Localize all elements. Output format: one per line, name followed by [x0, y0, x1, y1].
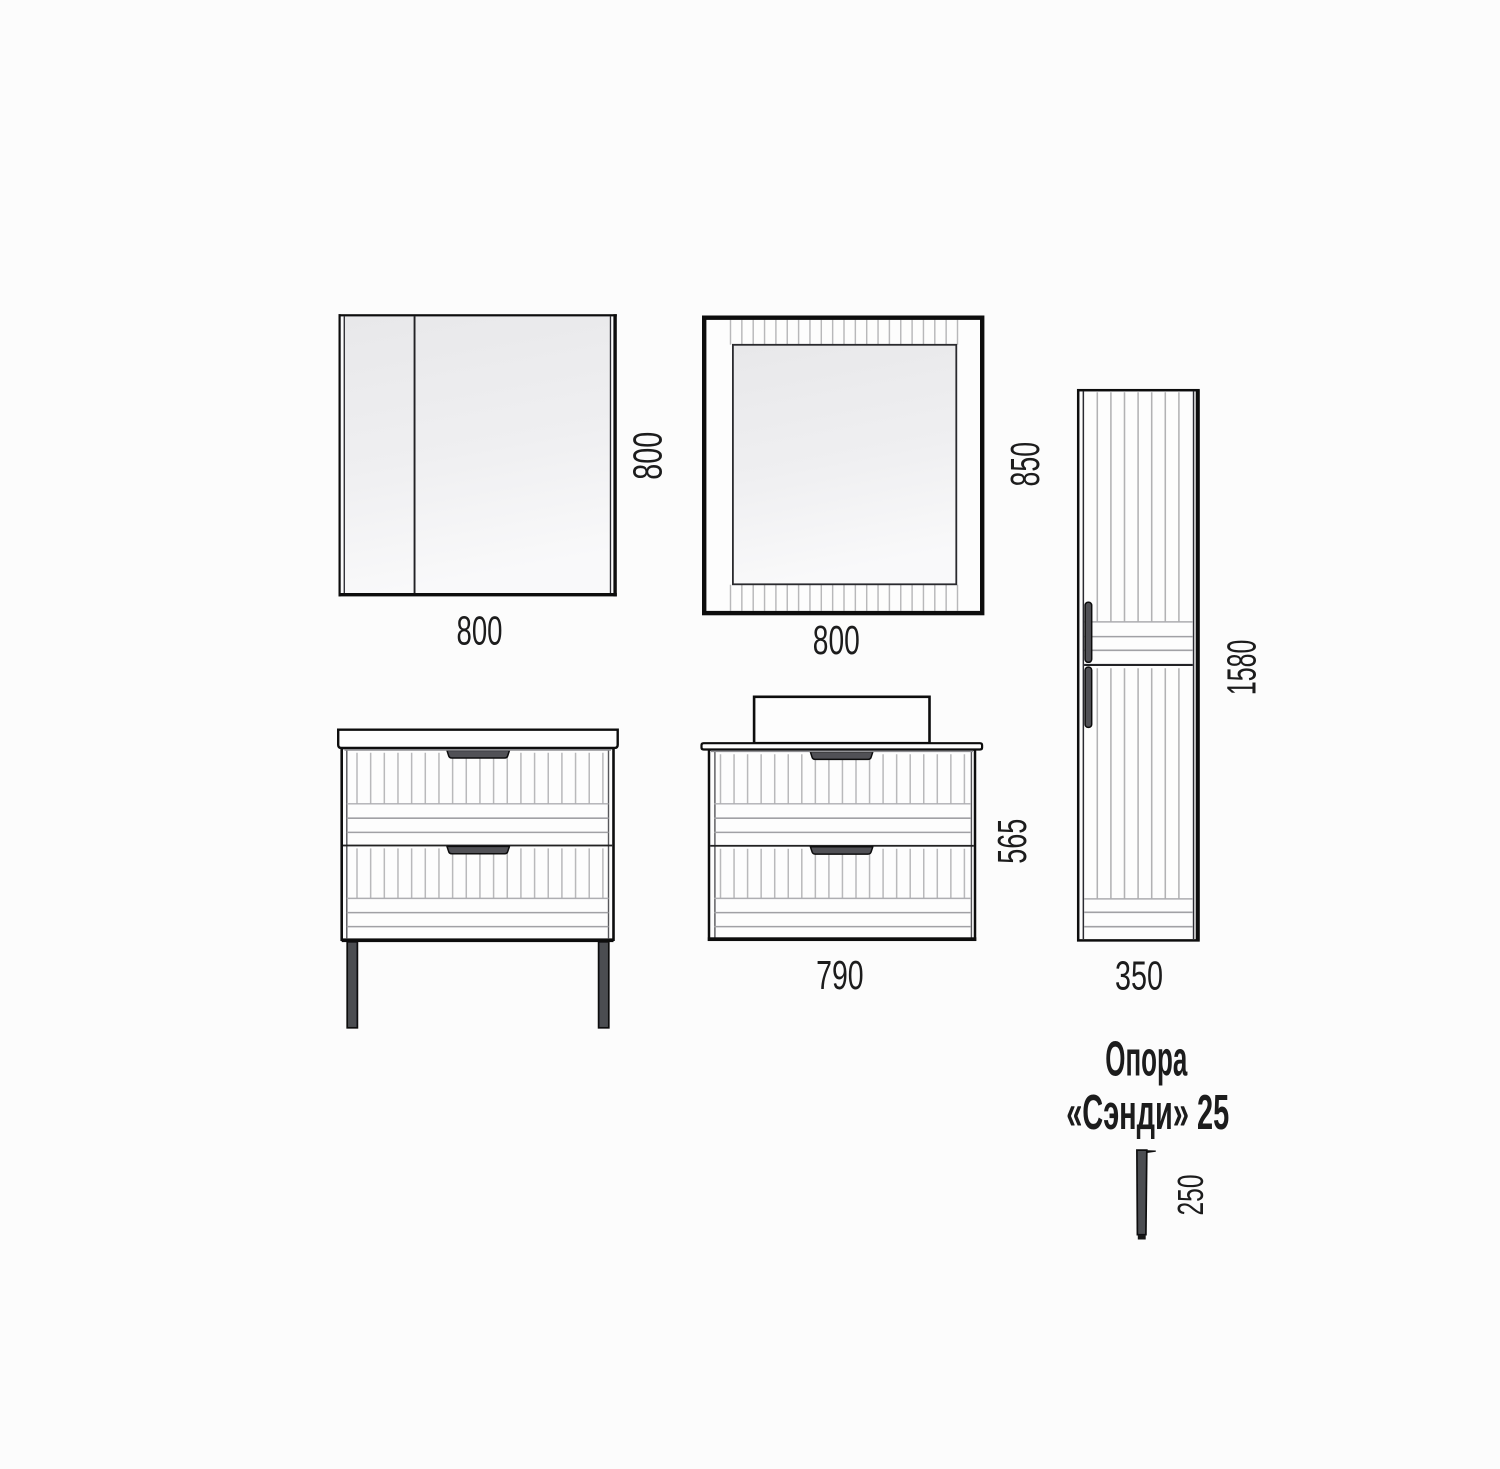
svg-text:850: 850 — [1002, 442, 1048, 487]
svg-text:800: 800 — [624, 432, 670, 480]
svg-text:«Сэнди» 25: «Сэнди» 25 — [1066, 1086, 1229, 1140]
svg-text:790: 790 — [816, 952, 864, 998]
svg-text:1580: 1580 — [1218, 640, 1264, 696]
svg-text:565: 565 — [989, 819, 1035, 864]
svg-text:350: 350 — [1115, 953, 1163, 999]
svg-text:Опора: Опора — [1105, 1033, 1187, 1087]
svg-text:800: 800 — [457, 607, 503, 653]
svg-text:250: 250 — [1170, 1175, 1211, 1216]
svg-text:800: 800 — [813, 617, 860, 663]
